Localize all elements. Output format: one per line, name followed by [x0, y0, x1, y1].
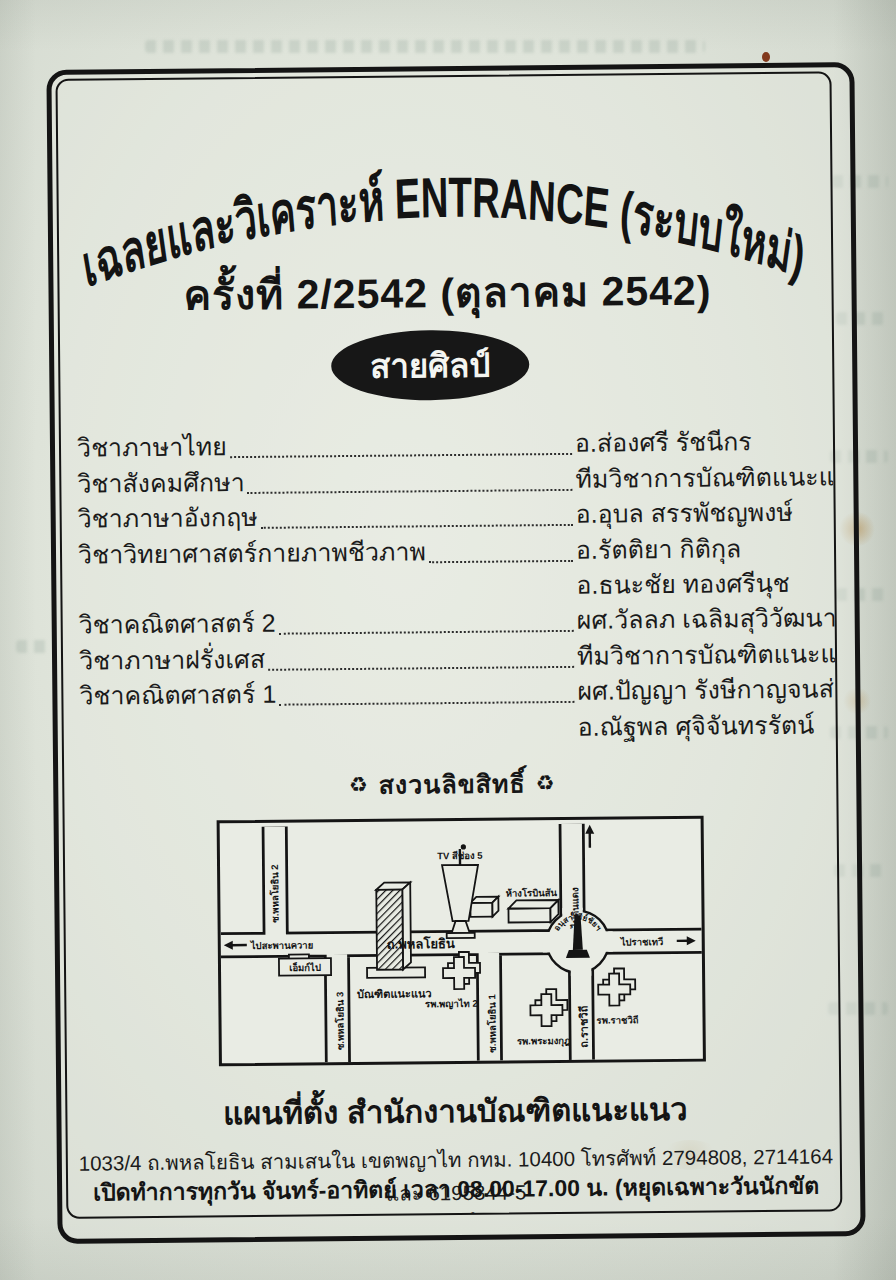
dot-leader [279, 630, 574, 635]
bleedthrough-smudge [145, 40, 705, 53]
copyright-note: ♻สงวนลิขสิทธิ์♻ [64, 760, 840, 807]
copyright-text: สงวนลิขสิทธิ์ [379, 769, 526, 798]
subject-author: อ.ณัฐพล ศุจิจันทรรัตน์ [578, 704, 828, 746]
phahonyothin-road-label: ถ.พหลโยธิน [387, 935, 455, 952]
dot-leader [279, 701, 574, 706]
recycle-icon: ♻ [526, 771, 566, 794]
location-map: อนุสาวรีย์ชัยฯ [217, 816, 706, 1067]
robinson-store-icon [508, 900, 558, 922]
dot-leader [248, 489, 573, 494]
recycle-icon: ♻ [339, 773, 379, 796]
location-map-drawing: อนุสาวรีย์ชัยฯ [220, 819, 703, 1064]
edition-subtitle: ครั้งที่ 2/2542 (ตุลาคม 2542) [59, 256, 836, 328]
hospital-cross-icon [598, 968, 635, 1005]
to-ratchathewi-label: ไปราชเทวี [620, 936, 664, 947]
to-dindaeng-label: ไปดินแดง [569, 887, 580, 929]
dot-leader [429, 559, 573, 562]
rajavithi-hospital-label: รพ.ราชวิถี [596, 1014, 638, 1025]
soi2-label: ซ.พหลโยธิน 2 [269, 864, 281, 922]
soi3-label: ซ.พหลโยธิน 3 [334, 992, 346, 1050]
tv-channel5-label: TV สีช่อง 5 [437, 850, 483, 861]
robinson-label: ห้างโรบินสัน [506, 887, 558, 898]
hospital-cross-icon [443, 952, 480, 989]
dot-leader [261, 524, 573, 529]
subject-row-continuation: อ.ณัฐพล ศุจิจันทรรัตน์ [80, 709, 828, 752]
bleedthrough-smudge [16, 640, 50, 653]
page-frame-inner: เฉลยและวิเคราะห์ ENTRANCE (ระบบใหม่) ครั… [55, 71, 842, 1218]
arrow-up-icon [585, 825, 594, 848]
hospital-cross-icon [530, 989, 567, 1026]
page-frame: เฉลยและวิเคราะห์ ENTRANCE (ระบบใหม่) ครั… [46, 62, 865, 1244]
bundit-building-icon [366, 882, 425, 978]
to-saphankhwai-label: ไปสะพานควาย [250, 939, 313, 951]
dot-leader [268, 666, 574, 671]
em-building-label: เอ็มก์ไป [289, 961, 321, 973]
track-badge: สายศิลป์ [331, 329, 530, 401]
dot-leader [230, 453, 572, 458]
office-hours-line: เปิดทำการทุกวัน จันทร์-อาทิตย์ เวลา 08.0… [68, 1167, 842, 1218]
page-scan: เฉลยและวิเคราะห์ ENTRANCE (ระบบใหม่) ครั… [0, 0, 896, 1280]
phyathai2-hospital-label: รพ.พญาไท 2 [425, 998, 478, 1011]
subject-name: วิชาคณิตศาสตร์ 1 [79, 674, 276, 716]
subject-name: วิชาวิทยาศาสตร์กายภาพชีวภาพ [78, 531, 426, 574]
subject-list: วิชาภาษาไทย อ.ส่องศรี รัชนีกร วิชาสังคมศ… [77, 425, 828, 751]
bundit-naenaew-label: บัณฑิตแนะแนว [357, 987, 432, 1000]
map-heading: แผนที่ตั้ง สำนักงานบัณฑิตแนะแนว [67, 1082, 842, 1139]
ratchawithi-road-label: ถ.ราชวิถี [577, 1005, 589, 1048]
track-badge-label: สายศิลป์ [370, 338, 491, 392]
phramongkut-hospital-label: รพ.พระมงกุฎ [517, 1035, 571, 1048]
stain [762, 52, 770, 62]
soi1-label: ซ.พหลโยธิน 1 [486, 994, 498, 1053]
